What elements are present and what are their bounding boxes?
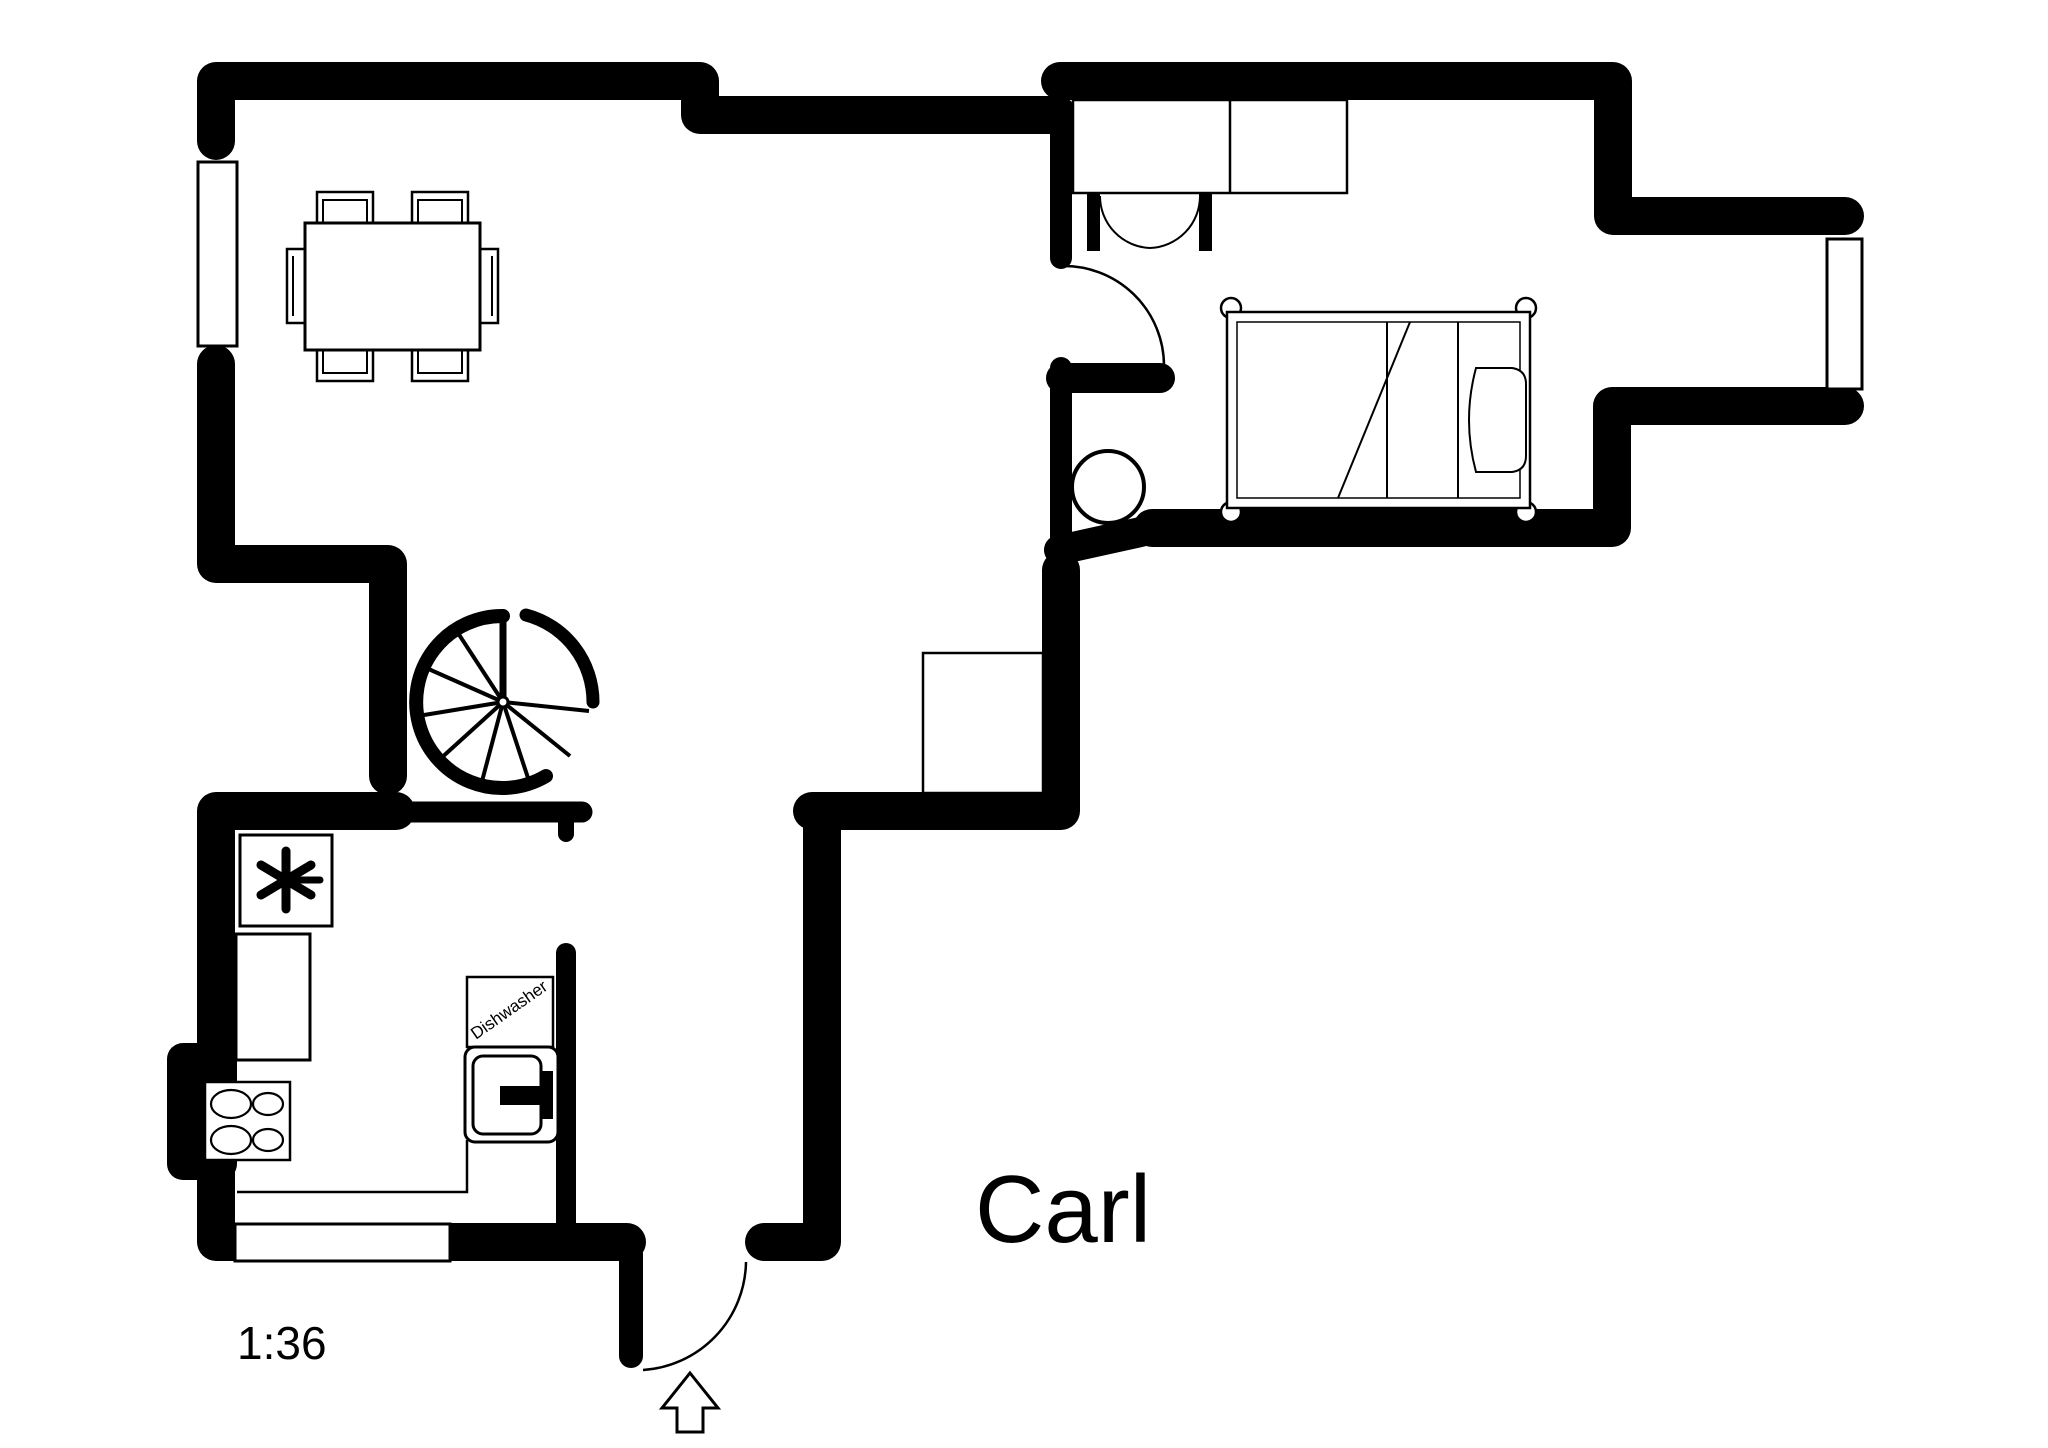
wardrobe-door-swing-left-icon	[1100, 196, 1150, 248]
dining-table	[305, 223, 480, 350]
chair-right	[480, 249, 498, 323]
wall-top-left	[216, 81, 1058, 141]
scale-label: 1:36	[237, 1317, 327, 1369]
wardrobe-jamb-right	[1199, 193, 1212, 251]
chair-top-left	[317, 192, 373, 223]
chair-left	[287, 249, 305, 323]
dishwasher-handle-bar	[541, 1071, 553, 1119]
wardrobe-door-swing-right-icon	[1150, 196, 1200, 248]
burner-icon	[253, 1129, 283, 1151]
kitchen: Dishwasher	[205, 835, 558, 1192]
dishwasher: Dishwasher	[465, 977, 558, 1142]
stair-center-pole	[498, 697, 508, 707]
burner-icon	[211, 1126, 251, 1154]
wall-stair-enclosure	[216, 364, 388, 776]
chair-bottom-left	[317, 350, 373, 381]
entrance-arrow-icon	[662, 1373, 718, 1432]
hall-door-swing-icon	[1061, 266, 1164, 366]
wardrobe-body	[1073, 100, 1347, 193]
window-left-icon	[198, 162, 237, 346]
plan-title: Carl	[975, 1156, 1151, 1263]
wall-corridor-right	[764, 811, 822, 1242]
window-bay-icon	[1827, 239, 1862, 389]
dining-set	[287, 192, 498, 381]
window-bottom-icon	[235, 1224, 450, 1261]
wall-diagonal	[1059, 529, 1154, 550]
cooktop	[205, 1082, 290, 1160]
bed-pillow	[1469, 368, 1526, 472]
kitchen-counter-upper	[236, 934, 310, 1060]
stair-outer-ring	[416, 616, 546, 788]
spiral-staircase	[416, 615, 593, 788]
burner-icon	[211, 1090, 251, 1118]
wardrobe	[1073, 100, 1347, 251]
entrance-door-swing-icon	[643, 1262, 746, 1370]
round-basin	[1072, 451, 1144, 523]
dishwasher-handle	[500, 1086, 548, 1105]
burner-icon	[253, 1093, 283, 1115]
floor-plan-page: Dishwasher Carl 1:36	[0, 0, 2048, 1448]
bed	[1221, 298, 1536, 522]
chair-bottom-right	[412, 350, 468, 381]
floor-plan-drawing: Dishwasher Carl 1:36	[0, 0, 2048, 1448]
shaft-cupboard	[923, 653, 1043, 793]
wardrobe-jamb-left	[1087, 193, 1100, 251]
stair-handrail	[526, 615, 593, 702]
chair-top-right	[412, 192, 468, 223]
